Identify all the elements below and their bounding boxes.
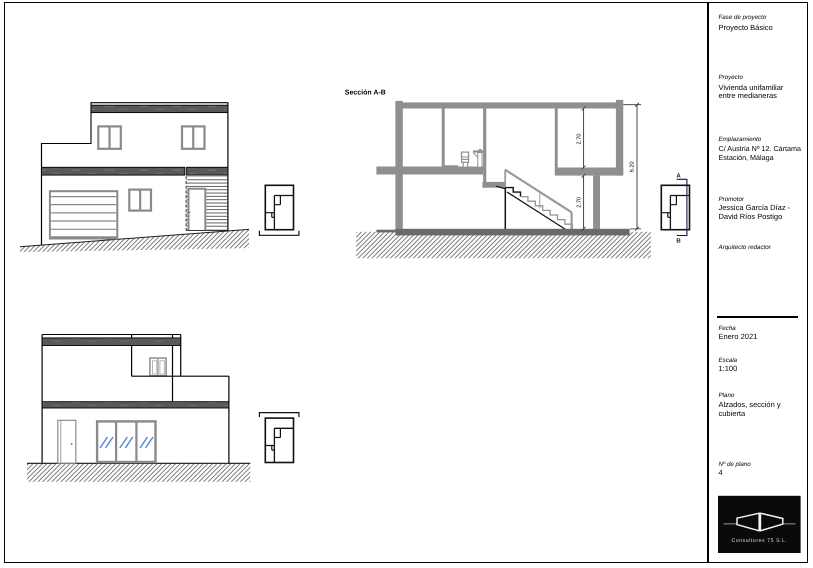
svg-text:2.70: 2.70 (576, 197, 582, 208)
svg-text:Consultores 75 S.L.: Consultores 75 S.L. (731, 538, 787, 544)
svg-text:A: A (676, 172, 681, 179)
svg-text:Sección A-B: Sección A-B (345, 88, 386, 96)
svg-text:2.70: 2.70 (576, 134, 582, 145)
svg-text:B: B (676, 238, 681, 245)
svg-text:6.20: 6.20 (630, 161, 636, 172)
